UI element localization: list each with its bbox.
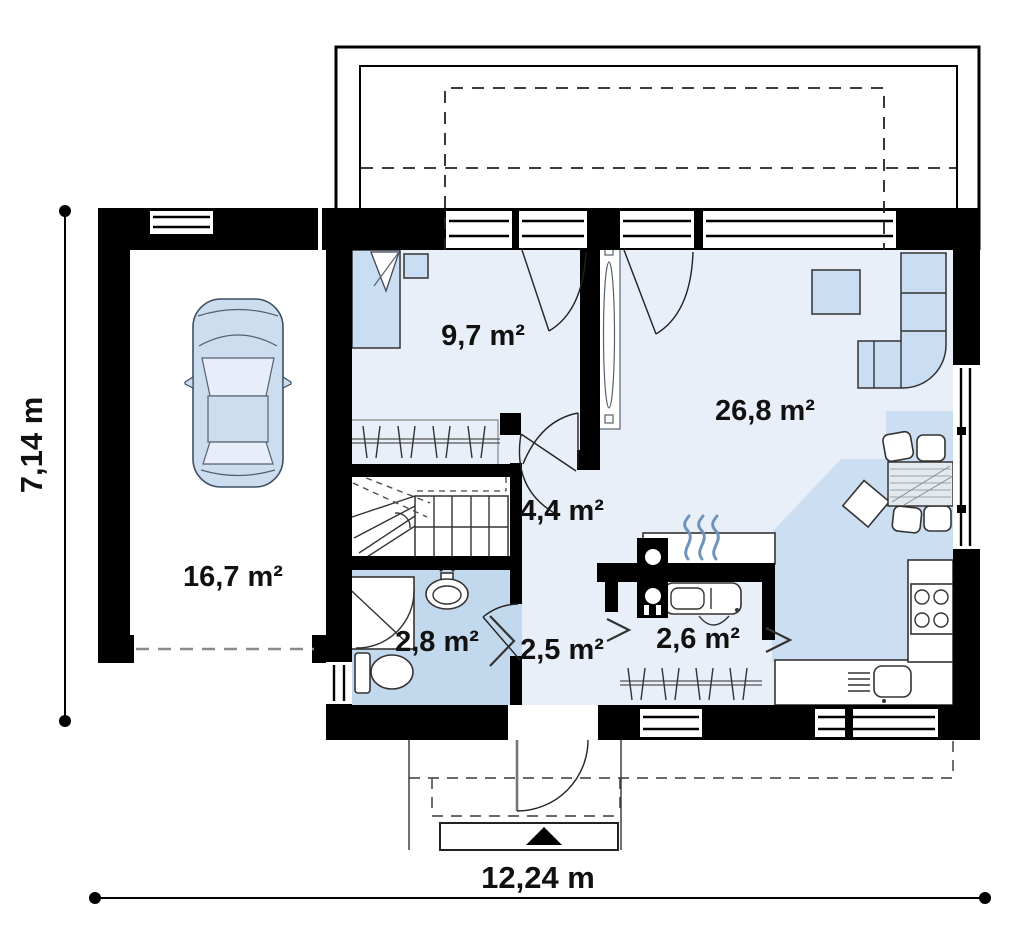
entrance-porch bbox=[409, 740, 621, 850]
garage-area-label: 16,7 m² bbox=[183, 561, 283, 593]
kitchen-window bbox=[815, 709, 938, 737]
nightstand bbox=[404, 254, 428, 278]
wardrobe-area-label: 2,6 m² bbox=[656, 623, 740, 655]
garage-window bbox=[150, 211, 213, 234]
floor-plan-drawing: 9,7 m² 26,8 m² 4,4 m² 16,7 m² 2,8 m² 2,5… bbox=[0, 0, 1024, 933]
floor-plan: 9,7 m² 26,8 m² 4,4 m² 16,7 m² 2,8 m² 2,5… bbox=[0, 0, 1024, 933]
stove-icon bbox=[911, 584, 953, 634]
bathroom-area-label: 2,8 m² bbox=[395, 626, 479, 658]
radiator bbox=[598, 241, 620, 429]
wardrobe-window bbox=[640, 709, 702, 737]
living-area-label: 26,8 m² bbox=[715, 395, 815, 427]
entry-area-label: 2,5 m² bbox=[520, 634, 604, 666]
width-dimension-label: 12,24 m bbox=[481, 860, 595, 895]
entrance-opening bbox=[508, 705, 598, 740]
living-window-top bbox=[703, 211, 896, 248]
roof-overhang-dashes bbox=[409, 741, 953, 816]
bedroom-area-label: 9,7 m² bbox=[441, 320, 525, 352]
depth-dimension-label: 7,14 m bbox=[14, 397, 49, 494]
bedroom-terrace-door-glazing bbox=[519, 211, 587, 248]
bedroom-window bbox=[446, 211, 512, 248]
bathroom-window bbox=[326, 662, 352, 704]
living-window-right bbox=[953, 365, 980, 549]
car-icon bbox=[185, 299, 291, 487]
bed bbox=[352, 250, 400, 348]
hall-area-label: 4,4 m² bbox=[520, 495, 604, 527]
living-terrace-door-glazing bbox=[620, 211, 694, 248]
entrance-door bbox=[517, 740, 588, 811]
coffee-table bbox=[812, 270, 860, 314]
